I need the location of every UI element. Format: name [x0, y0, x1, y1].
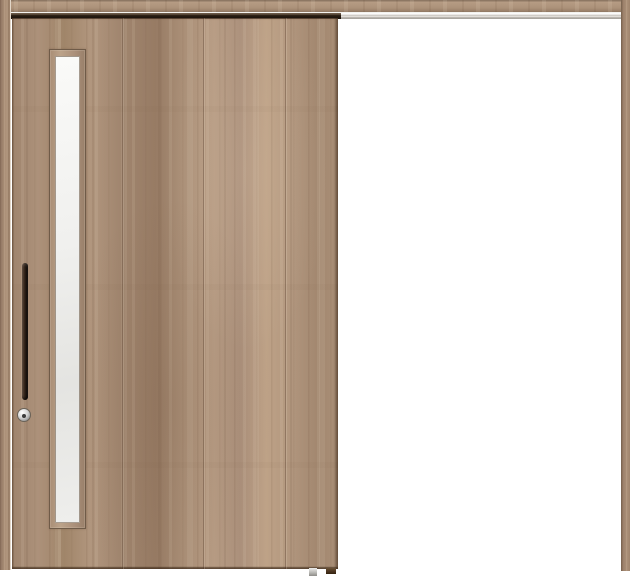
glass-panel [55, 56, 80, 523]
door-handle-bar[interactable] [22, 263, 28, 400]
plank-seam [203, 18, 204, 569]
right-frame-post [621, 0, 630, 571]
floor-stop-block [326, 568, 336, 574]
plank-seam [122, 18, 123, 569]
floor-guide-bracket [309, 568, 317, 576]
sliding-door-panel[interactable] [12, 18, 338, 569]
doorway-scene [0, 0, 630, 576]
lock-thumbturn-dot [22, 414, 26, 418]
left-frame-post [0, 0, 11, 570]
lock-knob[interactable] [17, 408, 31, 422]
header-lintel [0, 0, 630, 12]
door-opening [338, 19, 621, 576]
plank-seam [285, 18, 286, 569]
glass-window-frame [49, 49, 86, 529]
